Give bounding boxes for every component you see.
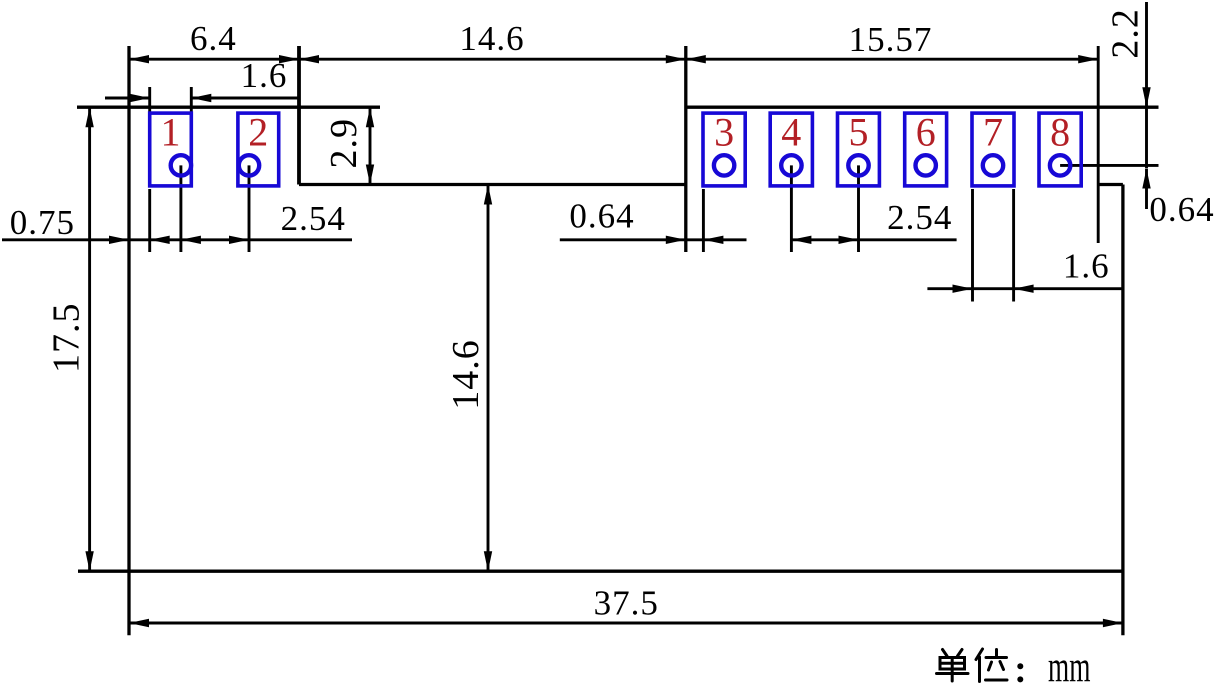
svg-text:mm: mm [1048,642,1090,691]
svg-text:5: 5 [849,110,869,155]
svg-text:0.64: 0.64 [569,196,634,235]
svg-text:1: 1 [161,110,181,155]
svg-text:17.5: 17.5 [45,303,87,374]
svg-text:6.4: 6.4 [190,19,237,58]
svg-text:2.9: 2.9 [323,118,365,169]
svg-text:15.57: 15.57 [849,20,933,59]
svg-text:7: 7 [983,110,1003,155]
svg-text:6: 6 [916,110,936,155]
svg-text:2.2: 2.2 [1105,8,1147,59]
svg-text:2: 2 [248,110,268,155]
svg-text:2.54: 2.54 [281,199,346,238]
svg-text:0.64: 0.64 [1149,190,1214,229]
svg-text:37.5: 37.5 [594,584,659,623]
svg-text:1.6: 1.6 [1063,247,1110,286]
svg-text:8: 8 [1050,110,1070,155]
svg-text:14.6: 14.6 [445,339,487,410]
svg-text:3: 3 [714,110,734,155]
svg-text:4: 4 [781,110,801,155]
svg-text:1.6: 1.6 [241,56,288,95]
svg-text:2.54: 2.54 [887,198,952,237]
svg-text:14.6: 14.6 [459,19,524,58]
svg-text:0.75: 0.75 [10,203,75,242]
